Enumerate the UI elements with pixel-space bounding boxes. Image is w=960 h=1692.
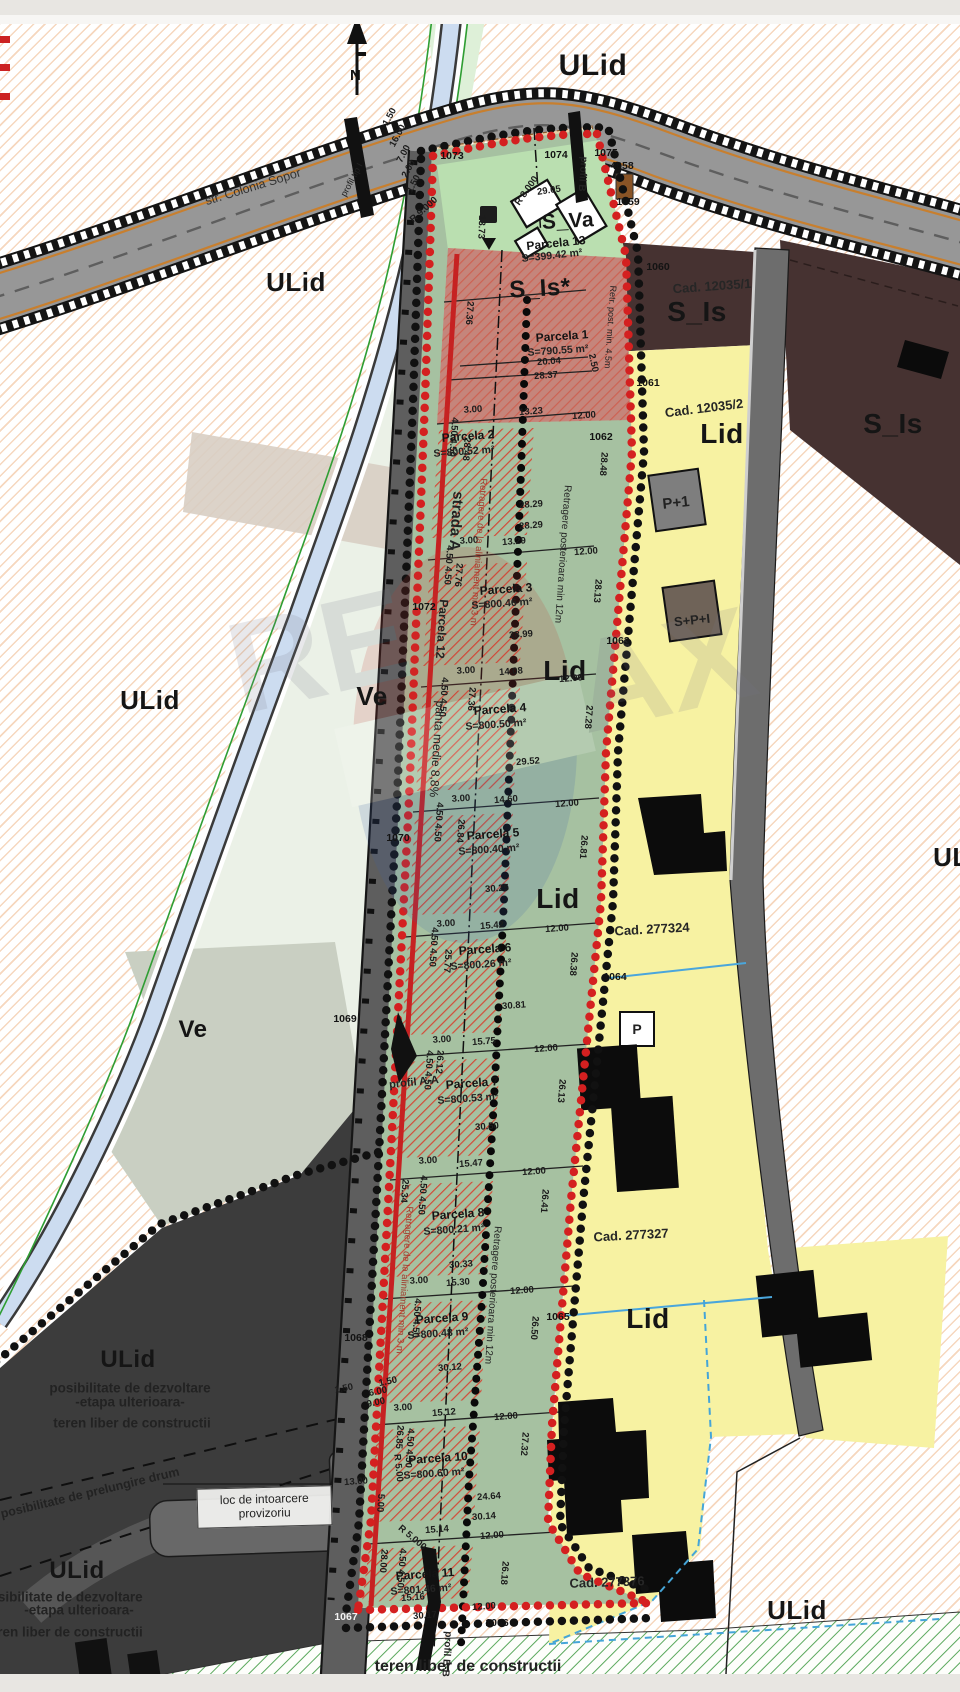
dimension-label: 13.23 bbox=[519, 406, 543, 417]
note-label: teren liber de constructii bbox=[375, 1659, 562, 1675]
dimension-label: 27.32 bbox=[518, 1432, 529, 1456]
dimension-label: 12.00 bbox=[494, 1411, 518, 1422]
building-label: S+P+I bbox=[673, 612, 710, 629]
note-label: Retragere posterioara min 12m bbox=[552, 485, 572, 624]
dimension-label: 26.38 bbox=[567, 952, 578, 976]
dimension-label: 4.50 4.50 bbox=[416, 1175, 428, 1215]
zone-label: ULid bbox=[933, 844, 960, 870]
parcel-name: Parcela 8 bbox=[431, 1206, 484, 1222]
dimension-label: 30.17 bbox=[413, 1610, 437, 1621]
dimension-label: 28.00 bbox=[377, 1549, 388, 1573]
note-label: profil B bbox=[576, 156, 588, 192]
cadastral-label: Cad. 277324 bbox=[614, 921, 690, 938]
parcel-name: Parcela 5 bbox=[466, 826, 519, 842]
note-label: str. Colonia Sopor bbox=[204, 166, 303, 207]
dimension-label: 12.00 bbox=[534, 1043, 558, 1054]
dimension-label: R 9.000 bbox=[408, 195, 439, 224]
dimension-label: 28.37 bbox=[534, 370, 558, 381]
parcel-name: Parcela 10 bbox=[408, 1450, 468, 1466]
parcel-name: Parcela 3 bbox=[479, 581, 532, 597]
parcel-name: Parcela 11 bbox=[395, 1566, 454, 1582]
dimension-label: 27.36 bbox=[463, 301, 474, 325]
dimension-label: 28.13 bbox=[591, 579, 602, 603]
parcel-name: Parcela 7 bbox=[445, 1075, 498, 1091]
dimension-label: 15.12 bbox=[432, 1407, 456, 1418]
dimension-label: 3.00 bbox=[432, 1035, 451, 1046]
dimension-label: 12.00 bbox=[559, 673, 583, 684]
point-marker: 1070 bbox=[386, 833, 409, 844]
dimension-label: 30.14 bbox=[472, 1511, 496, 1522]
dimension-label: 15.75 bbox=[472, 1036, 496, 1047]
parcel-name: Parcela 1 bbox=[535, 328, 588, 344]
dimension-label: 30.50 bbox=[475, 1121, 499, 1132]
point-marker: 1073 bbox=[440, 151, 463, 162]
zone-label: ULid bbox=[559, 51, 628, 81]
point-marker: 1064 bbox=[603, 972, 626, 983]
parcel-area: S=800.21 m² bbox=[423, 1223, 485, 1238]
dimension-label: 15.47 bbox=[459, 1158, 483, 1169]
parcel-name: Parcela 9 bbox=[415, 1310, 468, 1326]
parcel-area: S=800.60 m² bbox=[403, 1467, 465, 1482]
dimension-label: 12.00 bbox=[522, 1166, 546, 1177]
note-label: strada A bbox=[446, 491, 465, 551]
dimension-label: 1.50 bbox=[381, 107, 398, 128]
zone-label: S_Is* bbox=[509, 275, 571, 302]
dimension-label: 26.50 bbox=[528, 1316, 539, 1340]
note-label: posibilitate de dezvoltare bbox=[49, 1381, 210, 1395]
dimension-label: 27.76 bbox=[452, 563, 463, 587]
dimension-label: 3.00 bbox=[451, 794, 470, 805]
map-labels: ULidULidULidULidULidULidULidVeVeS_IsS_Is… bbox=[0, 0, 960, 1692]
dimension-label: 12.00 bbox=[480, 1530, 504, 1541]
point-marker: 1065 bbox=[546, 1312, 569, 1323]
dimension-label: 12.00 bbox=[555, 798, 579, 809]
dimension-label: 15.14 bbox=[425, 1524, 449, 1535]
parcel-area: S=801.46 m² bbox=[390, 1583, 452, 1598]
parcel-area: S=800.50 m² bbox=[465, 718, 527, 733]
point-marker: 1074 bbox=[544, 150, 567, 161]
dimension-label: R 5.00 bbox=[392, 1454, 404, 1483]
note-label: Retr. post. min. 4.5m bbox=[603, 285, 618, 368]
parcel-area: S=800.26 m² bbox=[450, 958, 512, 973]
parcel-name: Parcela 4 bbox=[473, 701, 526, 717]
dimension-label: 12.00 bbox=[572, 410, 596, 421]
dimension-label: 26.84 bbox=[454, 819, 465, 843]
parcel-area: S=800.52 m² bbox=[433, 445, 495, 460]
zone-label: Lid bbox=[626, 1305, 670, 1333]
note-label: posibilitate de prelungire drum bbox=[0, 1466, 181, 1521]
dimension-label: 3.00 bbox=[409, 1276, 428, 1287]
note-label: teren liber de constructii bbox=[0, 1625, 143, 1639]
dimension-label: 12.00 bbox=[510, 1285, 534, 1296]
dimension-label: 30.12 bbox=[438, 1362, 462, 1373]
point-marker: 1060 bbox=[646, 262, 669, 273]
dimension-label: 3.00 bbox=[456, 666, 475, 677]
point-marker: 1059 bbox=[616, 197, 639, 208]
cadastral-label: Cad. 12035/1 bbox=[672, 277, 751, 295]
parcel-area: S=800.40 m² bbox=[458, 843, 520, 858]
dimension-label: 3.00 bbox=[393, 1403, 412, 1414]
dimension-label: 12.00 bbox=[545, 923, 569, 934]
dimension-label: 4.50 4.50 bbox=[427, 927, 439, 967]
dimension-label: 24.64 bbox=[477, 1491, 501, 1502]
dimension-label: 30.25 bbox=[485, 883, 509, 894]
cadastral-label: Cad. 277327 bbox=[593, 1227, 669, 1244]
cadastral-label: Cad. 277376 bbox=[569, 1574, 645, 1590]
note-label: teren liber de constructii bbox=[53, 1416, 211, 1430]
parcel-area: S=800.53 m² bbox=[437, 1092, 499, 1107]
dimension-label: 28.48 bbox=[597, 452, 608, 476]
note-label: -etapa ulterioara- bbox=[24, 1603, 134, 1617]
dimension-label: 12.00 bbox=[472, 1601, 496, 1612]
note-label: -etapa ulterioara- bbox=[75, 1395, 185, 1409]
zone-label: ULid bbox=[767, 1597, 827, 1623]
zone-label: S_Is bbox=[667, 298, 727, 326]
dimension-label: 15.42 bbox=[480, 920, 504, 931]
dimension-label: 28.29 bbox=[519, 520, 543, 531]
dimension-label: 1.50 bbox=[378, 1375, 398, 1388]
zone-label: Ve bbox=[356, 683, 387, 709]
zone-label: S_Va bbox=[541, 209, 594, 233]
point-marker: 1067 bbox=[334, 1612, 357, 1623]
point-marker: 1068 bbox=[344, 1333, 367, 1344]
point-marker: 1063 bbox=[606, 636, 629, 647]
site-plan: N RE AX ULidULidULidULidULidULidULidVeVe… bbox=[0, 0, 960, 1692]
note-label: profil tip I bbox=[339, 162, 364, 198]
point-marker: 1072 bbox=[412, 602, 435, 613]
dimension-label: 30.33 bbox=[449, 1259, 473, 1270]
dimension-label: 26.13 bbox=[555, 1079, 566, 1103]
dimension-label: 20.04 bbox=[537, 356, 561, 367]
zone-label: Lid bbox=[700, 420, 744, 448]
dimension-label: 4.50 4.50 bbox=[432, 802, 444, 842]
parcel-area: S=800.48 m² bbox=[407, 1327, 469, 1342]
parcel-name: Parcela 6 bbox=[458, 941, 511, 957]
point-marker: 1075 bbox=[594, 148, 617, 159]
dimension-label: 14.60 bbox=[494, 794, 518, 805]
note-label: Parcela 12 bbox=[434, 599, 450, 659]
zone-label: S_Is bbox=[863, 410, 923, 438]
dimension-label: 26.81 bbox=[577, 835, 588, 859]
dimension-label: 9.00 bbox=[366, 1396, 386, 1409]
dimension-label: 29.05 bbox=[537, 185, 562, 198]
note-label: panta medie 8,8% bbox=[428, 700, 447, 797]
dimension-label: 14.08 bbox=[499, 666, 523, 677]
point-marker: 4058 bbox=[610, 161, 633, 172]
zone-label: ULid bbox=[49, 1559, 104, 1583]
dimension-label: 28.29 bbox=[519, 499, 543, 510]
parcel-name: Parcela 2 bbox=[441, 428, 494, 444]
dimension-label: 25.34 bbox=[398, 1179, 409, 1203]
dimension-label: 3.00 bbox=[418, 1156, 437, 1167]
zone-label: ULid bbox=[100, 1348, 155, 1372]
cadastral-label: Cad. 12035/2 bbox=[664, 397, 744, 420]
dimension-label: 13.29 bbox=[502, 536, 526, 547]
dimension-label: 27.28 bbox=[582, 705, 593, 729]
zone-label: ULid bbox=[120, 687, 180, 713]
point-marker: 1066 bbox=[485, 1618, 508, 1629]
dimension-label: 26.12 bbox=[433, 1050, 444, 1074]
dimension-label: 13.73 bbox=[476, 215, 486, 239]
point-marker: 1062 bbox=[589, 432, 612, 443]
dimension-label: 15.30 bbox=[446, 1277, 470, 1288]
dimension-label: 3.00 bbox=[463, 405, 482, 416]
point-marker: 1061 bbox=[636, 378, 659, 389]
dimension-label: 26.18 bbox=[498, 1561, 509, 1585]
building-label: P+1 bbox=[662, 494, 691, 512]
dimension-label: 4.50 4.50 bbox=[442, 545, 454, 585]
dimension-label: 2.50 bbox=[586, 353, 599, 373]
zone-label: ULid bbox=[266, 269, 326, 295]
building-label: P bbox=[632, 1022, 641, 1036]
dimension-label: 12.00 bbox=[574, 546, 598, 557]
point-marker: 1069 bbox=[333, 1014, 356, 1025]
parcel-area: S=790.55 m² bbox=[527, 344, 589, 359]
dimension-label: 29.52 bbox=[516, 756, 540, 767]
dimension-label: 5.00 bbox=[375, 1493, 386, 1512]
dimension-label: 13.00 bbox=[344, 1476, 368, 1487]
dimension-label: 26.41 bbox=[538, 1189, 549, 1213]
parcel-area: S=800.46 m² bbox=[471, 597, 533, 612]
dimension-label: 30.81 bbox=[502, 1000, 526, 1011]
dimension-label: 28.99 bbox=[509, 629, 533, 640]
dimension-label: 1.50 bbox=[334, 1382, 354, 1395]
zone-label: Ve bbox=[178, 1018, 207, 1042]
zone-label: Lid bbox=[536, 885, 580, 913]
note-label: Retragere posterioara min 12m bbox=[482, 1226, 502, 1365]
